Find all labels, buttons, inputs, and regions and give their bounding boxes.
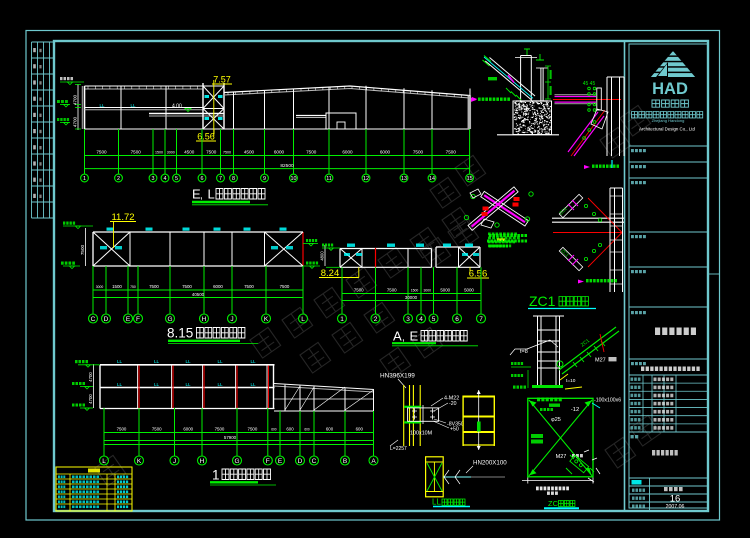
svg-text:7500: 7500 xyxy=(152,427,162,432)
svg-text:LL: LL xyxy=(154,359,160,364)
svg-text:LL: LL xyxy=(185,359,191,364)
svg-text:5000: 5000 xyxy=(464,288,474,293)
svg-text:7: 7 xyxy=(479,316,483,323)
svg-text:K: K xyxy=(137,458,142,465)
svg-text:4500: 4500 xyxy=(244,150,255,155)
svg-text:,: , xyxy=(402,333,405,344)
svg-text:C: C xyxy=(91,316,96,323)
svg-text:4700: 4700 xyxy=(88,372,93,382)
svg-text:1: 1 xyxy=(212,468,220,483)
svg-text:4: 4 xyxy=(164,176,167,182)
svg-text:600: 600 xyxy=(326,427,334,432)
svg-text:7500: 7500 xyxy=(248,427,258,432)
svg-text:7500: 7500 xyxy=(117,427,127,432)
svg-text:φ25: φ25 xyxy=(551,417,561,423)
svg-text:7500: 7500 xyxy=(244,284,254,289)
svg-text:-20: -20 xyxy=(449,401,457,407)
svg-text:6: 6 xyxy=(201,176,204,182)
svg-text:D: D xyxy=(298,458,303,465)
svg-text:LL: LL xyxy=(250,382,256,387)
svg-text:ZC1: ZC1 xyxy=(529,293,556,309)
svg-text:1500: 1500 xyxy=(155,151,163,155)
svg-text:G: G xyxy=(234,458,239,465)
svg-text:+50: +50 xyxy=(450,427,459,433)
svg-text:H: H xyxy=(202,316,207,323)
svg-text:1500: 1500 xyxy=(112,284,122,289)
svg-text:E: E xyxy=(126,316,131,323)
svg-text:LL: LL xyxy=(131,103,136,108)
svg-text:HN200X100: HN200X100 xyxy=(473,460,507,467)
svg-text:LL: LL xyxy=(117,359,123,364)
svg-text:-100x100x6: -100x100x6 xyxy=(594,398,621,404)
svg-text:A: A xyxy=(393,329,402,344)
svg-text:6000: 6000 xyxy=(380,150,391,155)
svg-text:7: 7 xyxy=(219,176,222,182)
svg-text:HAD: HAD xyxy=(652,80,688,98)
svg-text:7500: 7500 xyxy=(131,150,142,155)
svg-text:6000: 6000 xyxy=(183,427,193,432)
svg-text:E: E xyxy=(410,329,419,344)
svg-text:600: 600 xyxy=(286,427,294,432)
svg-text:F: F xyxy=(266,458,270,465)
svg-text:H: H xyxy=(200,458,205,465)
svg-text:40500: 40500 xyxy=(192,292,205,297)
svg-text:2007.06: 2007.06 xyxy=(666,504,685,510)
svg-text:3000: 3000 xyxy=(96,285,104,289)
svg-text:82500: 82500 xyxy=(280,163,294,169)
svg-text:7500: 7500 xyxy=(280,284,290,289)
svg-text:600: 600 xyxy=(271,428,277,432)
svg-text:Zhejiang Handong: Zhejiang Handong xyxy=(652,118,685,123)
svg-text:4.00: 4.00 xyxy=(172,104,182,110)
svg-text:E: E xyxy=(278,458,283,465)
svg-text:6000: 6000 xyxy=(213,284,223,289)
svg-text:HN396X199: HN396X199 xyxy=(380,373,415,380)
svg-text:1500: 1500 xyxy=(411,289,419,293)
svg-text:1: 1 xyxy=(83,176,86,182)
svg-text:7500: 7500 xyxy=(215,427,225,432)
svg-text:LL: LL xyxy=(117,382,123,387)
svg-text:M27: M27 xyxy=(595,358,606,364)
svg-text:7500: 7500 xyxy=(80,244,85,255)
svg-text:8: 8 xyxy=(232,176,235,182)
svg-text:J: J xyxy=(230,316,233,323)
svg-text:L=2257: L=2257 xyxy=(390,446,407,452)
svg-text:7500: 7500 xyxy=(149,284,159,289)
svg-text:7500: 7500 xyxy=(306,150,317,155)
svg-text:L: L xyxy=(301,316,305,323)
svg-text:6000: 6000 xyxy=(342,150,353,155)
svg-text:10: 10 xyxy=(291,176,297,182)
svg-text:4700: 4700 xyxy=(73,94,78,105)
svg-text:7500: 7500 xyxy=(354,288,364,293)
svg-text:600: 600 xyxy=(356,427,364,432)
svg-text:9: 9 xyxy=(263,176,266,182)
svg-text:7500: 7500 xyxy=(96,150,107,155)
svg-text:M27: M27 xyxy=(556,454,567,460)
svg-text:11: 11 xyxy=(326,176,332,182)
svg-text:5000: 5000 xyxy=(440,288,450,293)
svg-text:B: B xyxy=(343,458,347,465)
svg-text:6: 6 xyxy=(455,316,459,323)
svg-text:7.57: 7.57 xyxy=(213,75,231,85)
svg-text:14: 14 xyxy=(429,176,435,182)
svg-text:5: 5 xyxy=(432,316,436,323)
svg-text:L: L xyxy=(208,187,215,202)
svg-text:J: J xyxy=(173,458,176,465)
svg-text:12: 12 xyxy=(363,176,369,182)
svg-text:4800: 4800 xyxy=(320,251,325,261)
svg-text:t=8: t=8 xyxy=(520,349,528,355)
svg-text:6000: 6000 xyxy=(274,150,285,155)
svg-text:A: A xyxy=(371,458,376,465)
svg-text:4500: 4500 xyxy=(184,150,195,155)
svg-text:16: 16 xyxy=(670,494,681,505)
svg-text:8.15: 8.15 xyxy=(167,326,193,341)
svg-text:C: C xyxy=(312,458,317,465)
svg-text:F: F xyxy=(136,316,140,323)
svg-text:7500: 7500 xyxy=(182,284,192,289)
svg-text:LL: LL xyxy=(432,498,441,507)
svg-text:4700: 4700 xyxy=(88,394,93,404)
svg-text:4700: 4700 xyxy=(73,116,78,127)
svg-text:7500: 7500 xyxy=(387,288,397,293)
svg-text:t=10: t=10 xyxy=(566,378,576,384)
svg-text:3000: 3000 xyxy=(423,289,431,293)
svg-text:1: 1 xyxy=(340,316,344,323)
svg-text:LL: LL xyxy=(250,359,256,364)
svg-text:ZC: ZC xyxy=(548,499,559,508)
svg-text:100x10M: 100x10M xyxy=(410,431,433,437)
svg-text:3000: 3000 xyxy=(167,151,175,155)
svg-text:5: 5 xyxy=(175,176,178,182)
svg-text:6.56: 6.56 xyxy=(197,132,215,142)
svg-text:G: G xyxy=(167,316,172,323)
svg-text:30000: 30000 xyxy=(405,295,418,300)
svg-text:7500: 7500 xyxy=(206,150,217,155)
svg-text:7500: 7500 xyxy=(223,151,231,155)
svg-text:LL: LL xyxy=(100,103,105,108)
svg-text:-12: -12 xyxy=(571,407,579,413)
svg-text:LL: LL xyxy=(217,359,223,364)
svg-text:Architectural Design Co., Ltd: Architectural Design Co., Ltd xyxy=(639,127,695,132)
svg-text:15: 15 xyxy=(467,176,473,182)
svg-text:57900: 57900 xyxy=(224,435,237,440)
svg-text:2: 2 xyxy=(117,176,120,182)
svg-text:13: 13 xyxy=(401,176,407,182)
svg-text:3: 3 xyxy=(406,316,410,323)
svg-text:45 45: 45 45 xyxy=(583,81,596,87)
svg-text:4: 4 xyxy=(419,316,423,323)
svg-text:D: D xyxy=(104,316,109,323)
svg-text:7500: 7500 xyxy=(446,150,457,155)
svg-text:L: L xyxy=(102,458,106,465)
svg-text:LL: LL xyxy=(217,382,223,387)
svg-text:LL: LL xyxy=(154,382,160,387)
svg-text:LL: LL xyxy=(185,382,191,387)
svg-text:K: K xyxy=(264,316,269,323)
svg-text:7500: 7500 xyxy=(413,150,424,155)
svg-text:2: 2 xyxy=(374,316,378,323)
svg-text:3: 3 xyxy=(152,176,155,182)
svg-text:,: , xyxy=(200,191,203,202)
svg-text:750: 750 xyxy=(130,285,136,289)
svg-text:600: 600 xyxy=(304,428,310,432)
